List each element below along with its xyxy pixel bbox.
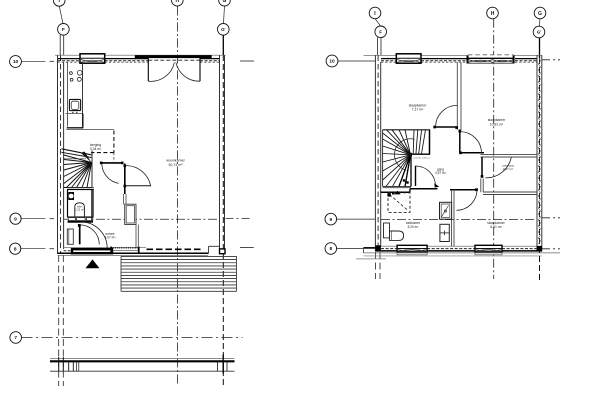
svg-text:30,74 m²: 30,74 m² [168,163,183,167]
svg-text:F: F [379,29,382,34]
svg-text:1,32 m²: 1,32 m² [75,208,84,212]
svg-text:aantrede 1000+d: aantrede 1000+d [413,156,430,159]
svg-text:H: H [491,11,495,17]
svg-text:H: H [175,0,179,4]
svg-text:F: F [62,27,65,32]
svg-text:8: 8 [14,246,17,252]
svg-text:5,20 m²: 5,20 m² [408,225,419,229]
svg-text:10,81 m²: 10,81 m² [490,122,504,126]
svg-text:9: 9 [14,216,17,222]
svg-text:4,07 m²: 4,07 m² [105,236,116,240]
svg-text:G': G' [221,27,225,32]
svg-text:8: 8 [329,246,332,252]
svg-text:10: 10 [13,59,19,65]
svg-text:9: 9 [329,217,332,223]
svg-text:G': G' [537,30,541,35]
svg-text:10: 10 [329,59,335,65]
svg-text:7: 7 [14,335,17,341]
svg-text:2,07 m²: 2,07 m² [503,167,513,171]
svg-text:G: G [223,0,227,4]
svg-text:7,17 m²: 7,17 m² [412,107,424,111]
svg-text:4,47 m²: 4,47 m² [435,171,446,175]
svg-text:6,41 m²: 6,41 m² [490,225,502,229]
svg-text:G: G [538,11,542,17]
